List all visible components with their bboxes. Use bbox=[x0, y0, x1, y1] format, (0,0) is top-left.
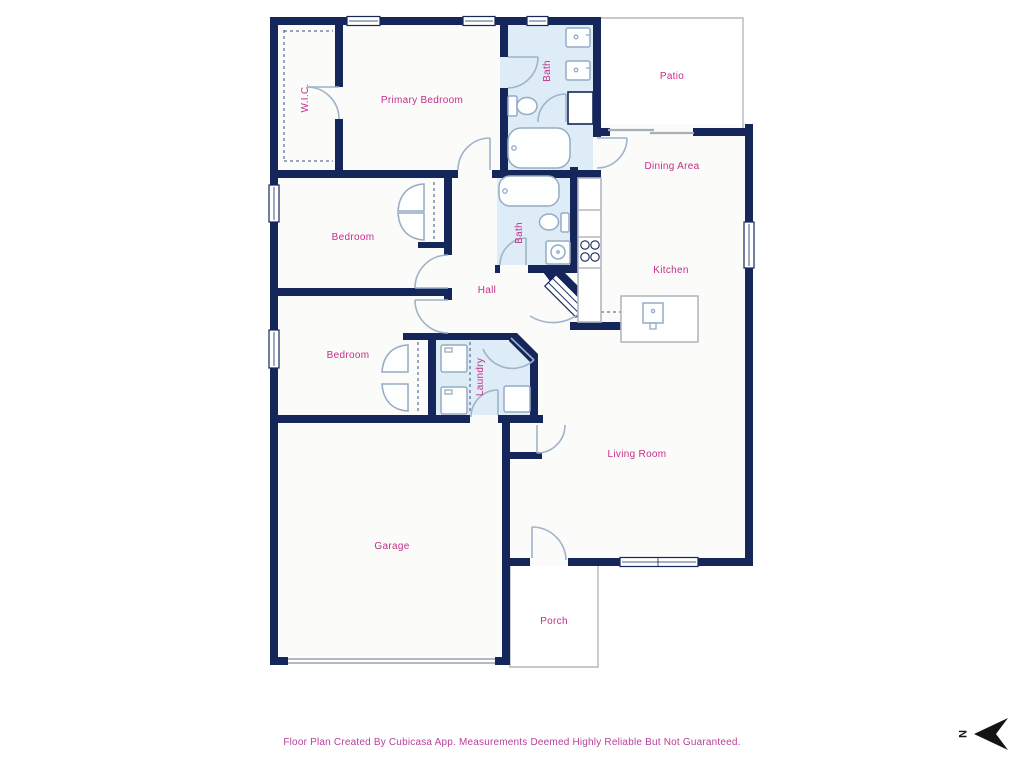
room-label-kitchen: Kitchen bbox=[653, 265, 688, 276]
washer bbox=[441, 345, 467, 372]
vanity-sink-1 bbox=[566, 28, 590, 47]
garage-door bbox=[288, 656, 495, 666]
window-dining bbox=[744, 222, 754, 268]
window-bedroom-mid bbox=[269, 185, 279, 222]
bath-top-closet bbox=[568, 92, 593, 124]
kitchen-counter bbox=[578, 178, 601, 322]
room-label-primary-bedroom: Primary Bedroom bbox=[381, 95, 463, 106]
bathtub-bath-mid bbox=[499, 176, 559, 206]
toilet-bath-mid bbox=[540, 213, 570, 232]
north-arrow: N bbox=[956, 718, 1008, 750]
room-label-hall: Hall bbox=[478, 285, 496, 296]
room-label-wic: W.I.C. bbox=[300, 83, 311, 112]
north-arrow-icon bbox=[974, 718, 1008, 750]
window-bedroom-low bbox=[269, 330, 279, 368]
north-label: N bbox=[956, 730, 968, 738]
water-heater bbox=[504, 386, 530, 412]
dryer bbox=[441, 387, 467, 414]
floor-plan-canvas: W.I.C. Primary Bedroom Bath Patio Dining… bbox=[0, 0, 1024, 768]
vanity-sink-2 bbox=[566, 61, 590, 80]
room-label-dining-area: Dining Area bbox=[645, 161, 700, 172]
toilet-bath-top bbox=[508, 96, 537, 116]
sink-bath-mid bbox=[546, 241, 570, 264]
window-bath-top bbox=[527, 17, 548, 26]
bathtub-bath-top bbox=[508, 128, 570, 168]
footer-disclaimer: Floor Plan Created By Cubicasa App. Meas… bbox=[283, 737, 740, 748]
window-primary-1 bbox=[347, 17, 380, 26]
room-label-bath-mid: Bath bbox=[514, 222, 525, 244]
room-label-patio: Patio bbox=[660, 71, 684, 82]
kitchen-island bbox=[621, 296, 698, 342]
window-primary-2 bbox=[463, 17, 495, 26]
window-living bbox=[620, 558, 698, 567]
room-label-bath-top: Bath bbox=[542, 60, 553, 82]
room-label-bedroom-low: Bedroom bbox=[327, 350, 370, 361]
room-label-laundry: Laundry bbox=[475, 358, 486, 396]
floor-plan-page: W.I.C. Primary Bedroom Bath Patio Dining… bbox=[0, 0, 1024, 768]
room-label-garage: Garage bbox=[374, 541, 409, 552]
room-label-bedroom-mid: Bedroom bbox=[332, 232, 375, 243]
room-label-living-room: Living Room bbox=[608, 449, 667, 460]
room-label-porch: Porch bbox=[540, 616, 568, 627]
